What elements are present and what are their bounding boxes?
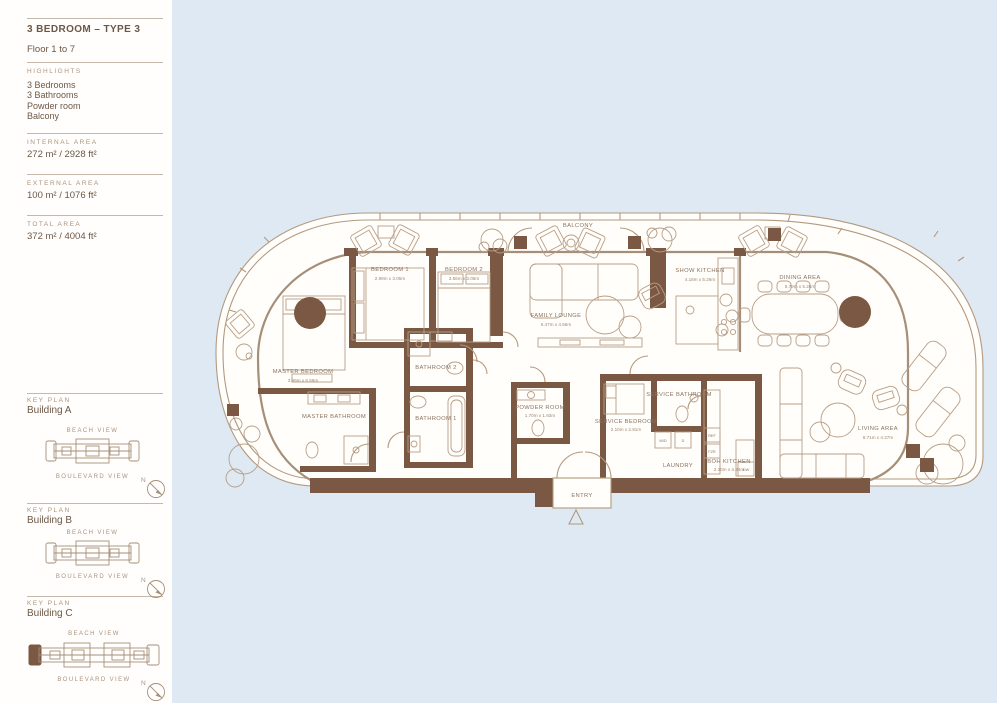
keyplan-c-compass: N [138,676,168,704]
internal-area-value: 272 m² / 2928 ft² [27,149,97,160]
building-outline [216,213,983,486]
page-title: 3 BEDROOM – TYPE 3 [27,24,140,35]
balcony-label: BALCONY [563,223,593,229]
room-label-bathroom-1: BATHROOM 1 [415,416,456,422]
external-area-value: 100 m² / 1076 ft² [27,190,97,201]
keyplan-a-compass: N [138,473,168,501]
highlights-heading: HIGHLIGHTS [27,68,82,75]
floor-range: Floor 1 to 7 [27,44,75,55]
room-label-bathroom-2: BATHROOM 2 [415,365,456,371]
compass-needle [156,693,163,698]
highlights-list: 3 Bedrooms 3 Bathrooms Powder room Balco… [27,80,81,121]
room-label-family-lounge: FAMILY LOUNGE [531,313,582,319]
external-area-heading: EXTERNAL AREA [27,180,100,187]
keyplan-b-beach-view: BEACH VIEW [45,530,140,536]
divider [27,215,163,216]
room-dims-boh-kitchen: 2.30m x 4.34m [714,467,745,472]
appliance-label-wd: W/D [659,439,667,443]
room-label-powder-room: POWDER ROOM [515,405,565,411]
divider [27,596,163,597]
total-area-heading: TOTAL AREA [27,221,81,228]
highlight-item: Powder room [27,101,81,111]
keyplan-c-building: Building C [27,608,73,619]
entry-label: ENTRY [571,493,592,499]
keyplan-a-building: Building A [27,405,71,416]
room-label-bedroom-1: BEDROOM 1 [371,267,409,273]
compass-n-label: N [141,477,146,484]
keyplan-a-heading: KEY PLAN [27,397,71,404]
keyplan-a-graphic [45,436,140,466]
divider [27,174,163,175]
divider [27,18,163,19]
compass-needle [156,590,163,595]
room-label-boh-kitchen: BOH KITCHEN [707,459,750,465]
room-dims-bedroom-1: 2.99m x 3.05m [375,276,406,281]
keyplan-b-heading: KEY PLAN [27,507,71,514]
divider [27,133,163,134]
divider [27,393,163,394]
highlight-item: 3 Bedrooms [27,80,81,90]
room-dims-bedroom-2: 3.56m x 3.05m [449,276,480,281]
highlight-item: Balcony [27,111,81,121]
room-label-living-area: LIVING AREA [858,426,898,432]
room-dims-master-bedroom: 3.99m x 5.59m [288,378,319,383]
keyplan-a-boulevard-view: BOULEVARD VIEW [45,474,140,480]
room-label-service-bedroom: SERVICE BEDROOM [595,419,657,425]
keyplan-c-graphic [28,639,160,671]
info-sidebar: 3 BEDROOM – TYPE 3 Floor 1 to 7 HIGHLIGH… [0,0,172,705]
appliance-label-fzr: FZR [708,450,716,454]
room-label-dining-area: DINING AREA [779,275,820,281]
appliance-label-d: D [682,439,685,443]
room-dims-service-bedroom: 2.10m x 2.91m [611,427,642,432]
room-label-show-kitchen: SHOW KITCHEN [675,268,724,274]
compass-n-label: N [141,680,146,687]
room-label-master-bedroom: MASTER BEDROOM [273,369,334,375]
divider [27,62,163,63]
keyplan-a-beach-view: BEACH VIEW [45,428,140,434]
appliance-label-ref: REF [708,434,716,438]
room-label-laundry: LAUNDRY [663,463,693,469]
appliance-label-dw: DW [743,468,750,472]
keyplan-b-building: Building B [27,515,72,526]
room-dims-dining-area: 6.79m x 5.26m [785,284,816,289]
total-area-value: 372 m² / 4004 ft² [27,231,97,242]
room-label-master-bathroom: MASTER BATHROOM [302,414,366,420]
internal-area-heading: INTERNAL AREA [27,139,98,146]
room-dims-family-lounge: 6.47m x 4.56m [541,322,572,327]
keyplan-b-boulevard-view: BOULEVARD VIEW [45,574,140,580]
room-label-service-bathroom: SERVICE BATHROOM [646,392,712,398]
divider [27,503,163,504]
keyplan-b-graphic [45,538,140,568]
highlight-item: 3 Bathrooms [27,90,81,100]
room-dims-powder-room: 1.70m x 1.93m [525,413,556,418]
compass-needle [156,490,163,495]
keyplan-c-beach-view: BEACH VIEW [28,631,160,637]
keyplan-c-heading: KEY PLAN [27,600,71,607]
room-label-bedroom-2: BEDROOM 2 [445,267,483,273]
room-dims-living-area: 6.71m x 4.27m [863,435,894,440]
compass-n-label: N [141,577,146,584]
entry-vestibule [553,478,611,524]
room-dims-show-kitchen: 4.18m x 5.26m [685,277,716,282]
